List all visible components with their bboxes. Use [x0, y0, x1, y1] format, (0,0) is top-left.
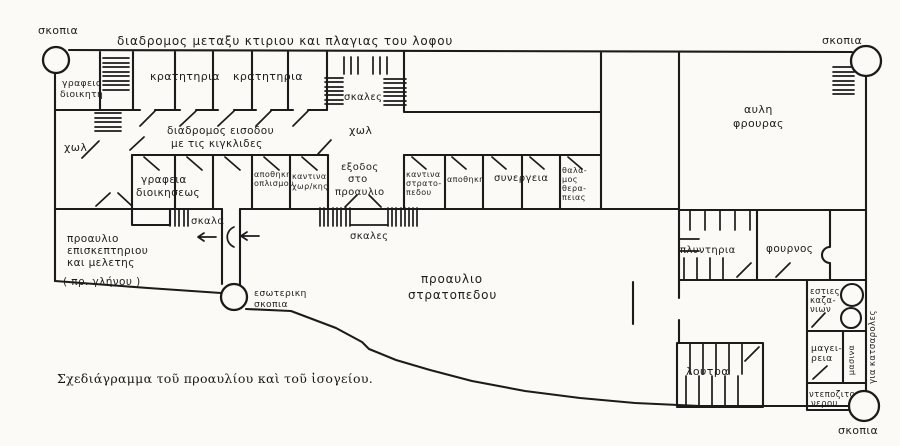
label-esoteriki-skopia-2: σκοπια — [254, 299, 288, 310]
watchtower-top-left-icon — [43, 47, 69, 73]
label-skopia-top-right: σκοπια — [822, 34, 862, 47]
label-diadromos-eisodou-1: διαδρομος εισοδου — [167, 125, 274, 137]
cauldron-2-icon — [841, 308, 861, 328]
label-grafeio-dioikiti-1: γραφειο — [62, 78, 102, 89]
label-apothiki-oplismou-1: αποθηκη — [254, 170, 292, 179]
stairs-hall-icon — [95, 113, 121, 131]
floor-plan-page: σκοπια διαδρομος μεταξυ κτιριου και πλαγ… — [0, 0, 900, 446]
label-kantina-strat-3: πεδου — [406, 188, 432, 197]
label-loutra: λουτρα — [686, 365, 729, 378]
label-esties-3: νιων — [810, 305, 831, 315]
terrain-line-right — [246, 309, 849, 406]
label-kratitiria-a: κρατητηρια — [150, 70, 220, 83]
walls-inner-corridor — [222, 209, 240, 285]
label-proavlio-episk-1: προαυλιο — [67, 233, 119, 245]
label-thalamos-1: θαλα- — [562, 166, 587, 175]
label-exodos-1: εξοδος — [341, 162, 379, 173]
floor-plan-drawing: σκοπια διαδρομος μεταξυ κτιριου και πλαγ… — [0, 0, 900, 446]
label-thalamos-4: πειας — [562, 193, 586, 202]
label-synergeia: συνεργεια — [494, 173, 548, 184]
label-thalamos-2: μος — [562, 175, 578, 184]
figure-caption: Σχεδιάγραμμα τοῦ προαυλίου καὶ τοῦ ἰσογε… — [57, 371, 373, 386]
label-proavlio-episk-2: επισκεπτηριου — [67, 245, 148, 257]
watchtower-top-right-icon — [851, 46, 881, 76]
label-diadromos-eisodou-2: με τις κιγκλιδες — [171, 138, 263, 150]
cauldron-1-icon — [841, 284, 863, 306]
label-exodos-3: προαυλιο — [335, 187, 384, 198]
label-kratitiria-b: κρατητηρια — [233, 70, 303, 83]
label-apothiki-oplismou-2: οπλισμου — [254, 179, 294, 188]
label-proavlio-strat-2: στρατοπεδου — [408, 288, 497, 302]
laundry-comb-top-icon — [690, 210, 750, 230]
label-proavlio-episk-3: και μελετης — [67, 257, 135, 269]
label-avli-frouras-1: αυλη — [744, 103, 773, 116]
label-grafeia-dioikiseos-1: γραφεια — [141, 174, 187, 186]
label-gia-katsaroles: για κατσαρολες — [868, 310, 878, 384]
stairs-top-right-icon — [833, 67, 854, 94]
label-proavlio-strat-1: προαυλιο — [421, 272, 483, 286]
cell-door-marks — [140, 111, 308, 126]
label-plyntiria: πλυντηρια — [680, 245, 736, 256]
label-skopia-bottom-right: σκοπια — [838, 424, 878, 437]
laundry-comb-bottom-icon — [684, 258, 723, 280]
stairs-south-right-icon — [388, 208, 417, 226]
stairs-mid-left-icon — [325, 78, 343, 104]
label-xol-left: χωλ — [64, 141, 87, 154]
stair-skala-icon — [170, 209, 188, 226]
label-grafeia-dioikiseos-2: διοικησεως — [136, 187, 200, 199]
label-ntepozito-2: νερου — [811, 399, 838, 409]
label-thalamos-3: θερα- — [562, 184, 586, 193]
wall-stair-landing — [132, 209, 170, 225]
plan-labels: σκοπια διαδρομος μεταξυ κτιριου και πλαγ… — [38, 24, 878, 437]
label-proavlio-episk-4: ( πρ. γλήνου ) — [63, 276, 141, 288]
label-skala: σκαλα — [191, 216, 224, 227]
label-xol-mid: χωλ — [349, 124, 372, 137]
window-combs-icon — [344, 57, 387, 74]
label-kantina-xorkis-2: χωρ/κης — [292, 182, 328, 191]
row-door-marks-right — [412, 157, 582, 169]
label-esoteriki-skopia-1: εσωτερικη — [254, 288, 307, 299]
baths-comb-bottom-icon — [686, 376, 738, 406]
label-apothiki: αποθηκη — [447, 175, 485, 184]
label-skopia-top-left: σκοπια — [38, 24, 78, 37]
stairs-top-left-icon — [103, 58, 129, 90]
gate-arc-icon — [227, 227, 234, 247]
arrow-left-2-icon — [241, 232, 259, 240]
wall-top-corridor — [69, 50, 852, 52]
wall-east-wing — [404, 52, 601, 112]
label-corridor-top: διαδρομος μεταξυ κτιριου και πλαγιας του… — [117, 34, 453, 48]
wall-oven-door-arc — [822, 210, 830, 280]
label-masina: μασινα — [847, 345, 856, 375]
label-kantina-strat-1: καντινα — [406, 170, 441, 179]
watchtower-inner-icon — [221, 284, 247, 310]
label-kantina-xorkis-1: καντινα — [292, 172, 327, 181]
label-skales-top: σκαλες — [344, 92, 382, 103]
label-avli-frouras-2: φρουρας — [733, 117, 784, 130]
label-kantina-strat-2: στρατο- — [406, 179, 442, 188]
label-mageireia-2: ρεια — [811, 353, 833, 364]
label-grafeio-dioikiti-2: διοικητη — [60, 89, 103, 100]
stairs-mid-right-icon — [384, 79, 406, 105]
arrow-left-icon — [198, 233, 216, 241]
label-exodos-2: στο — [348, 174, 368, 185]
label-fournos: φουρνος — [766, 243, 813, 255]
stairs-south-left-icon — [320, 208, 350, 226]
label-skales-bottom: σκαλες — [350, 231, 388, 242]
